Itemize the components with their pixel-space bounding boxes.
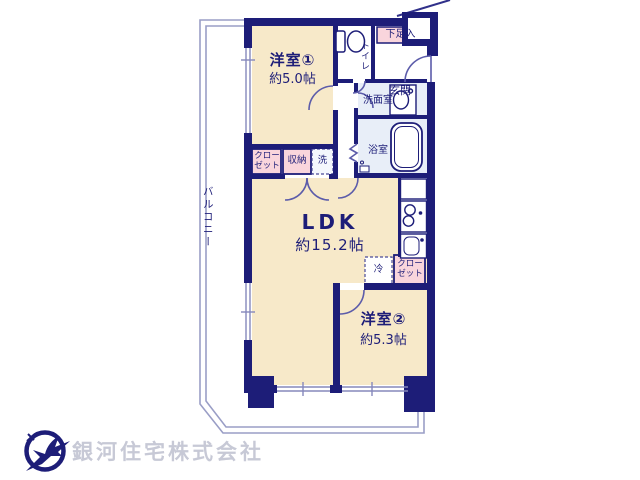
balcony-label: バルコニー — [201, 167, 214, 267]
folding-door-icon — [350, 144, 357, 162]
ldk-size-label: 約15.2帖 — [255, 236, 405, 254]
fridge-label: 冷 — [365, 264, 392, 276]
bathroom-label: 浴室 — [358, 145, 398, 157]
toilet-label: トイレ — [358, 31, 369, 81]
swallow-circle-logo-icon — [26, 433, 70, 472]
shoe-box-label: 下足入 — [377, 29, 424, 41]
company-name: 銀河住宅株式会社 — [72, 440, 264, 466]
storage-label: 収納 — [283, 155, 311, 167]
washroom-label: 洗面室 — [356, 95, 400, 107]
washer-label: 洗 — [312, 155, 333, 167]
western2-size-label: 約5.3帖 — [340, 333, 427, 349]
western1-name-label: 洋室① — [252, 51, 333, 69]
western2-name-label: 洋室② — [340, 310, 427, 328]
western1-size-label: 約5.0帖 — [252, 72, 333, 88]
entrance-door-arc-icon — [405, 56, 431, 82]
floorplan-page: 洋室① 約5.0帖 LDK 約15.2帖 洋室② 約5.3帖 玄関 下足入 トイ… — [0, 0, 640, 480]
ldk-name-label: LDK — [255, 210, 405, 234]
closet2-label: クローゼット — [395, 259, 425, 280]
closet1-label: クローゼット — [253, 151, 281, 172]
kitchen-counter-icon — [401, 179, 427, 199]
